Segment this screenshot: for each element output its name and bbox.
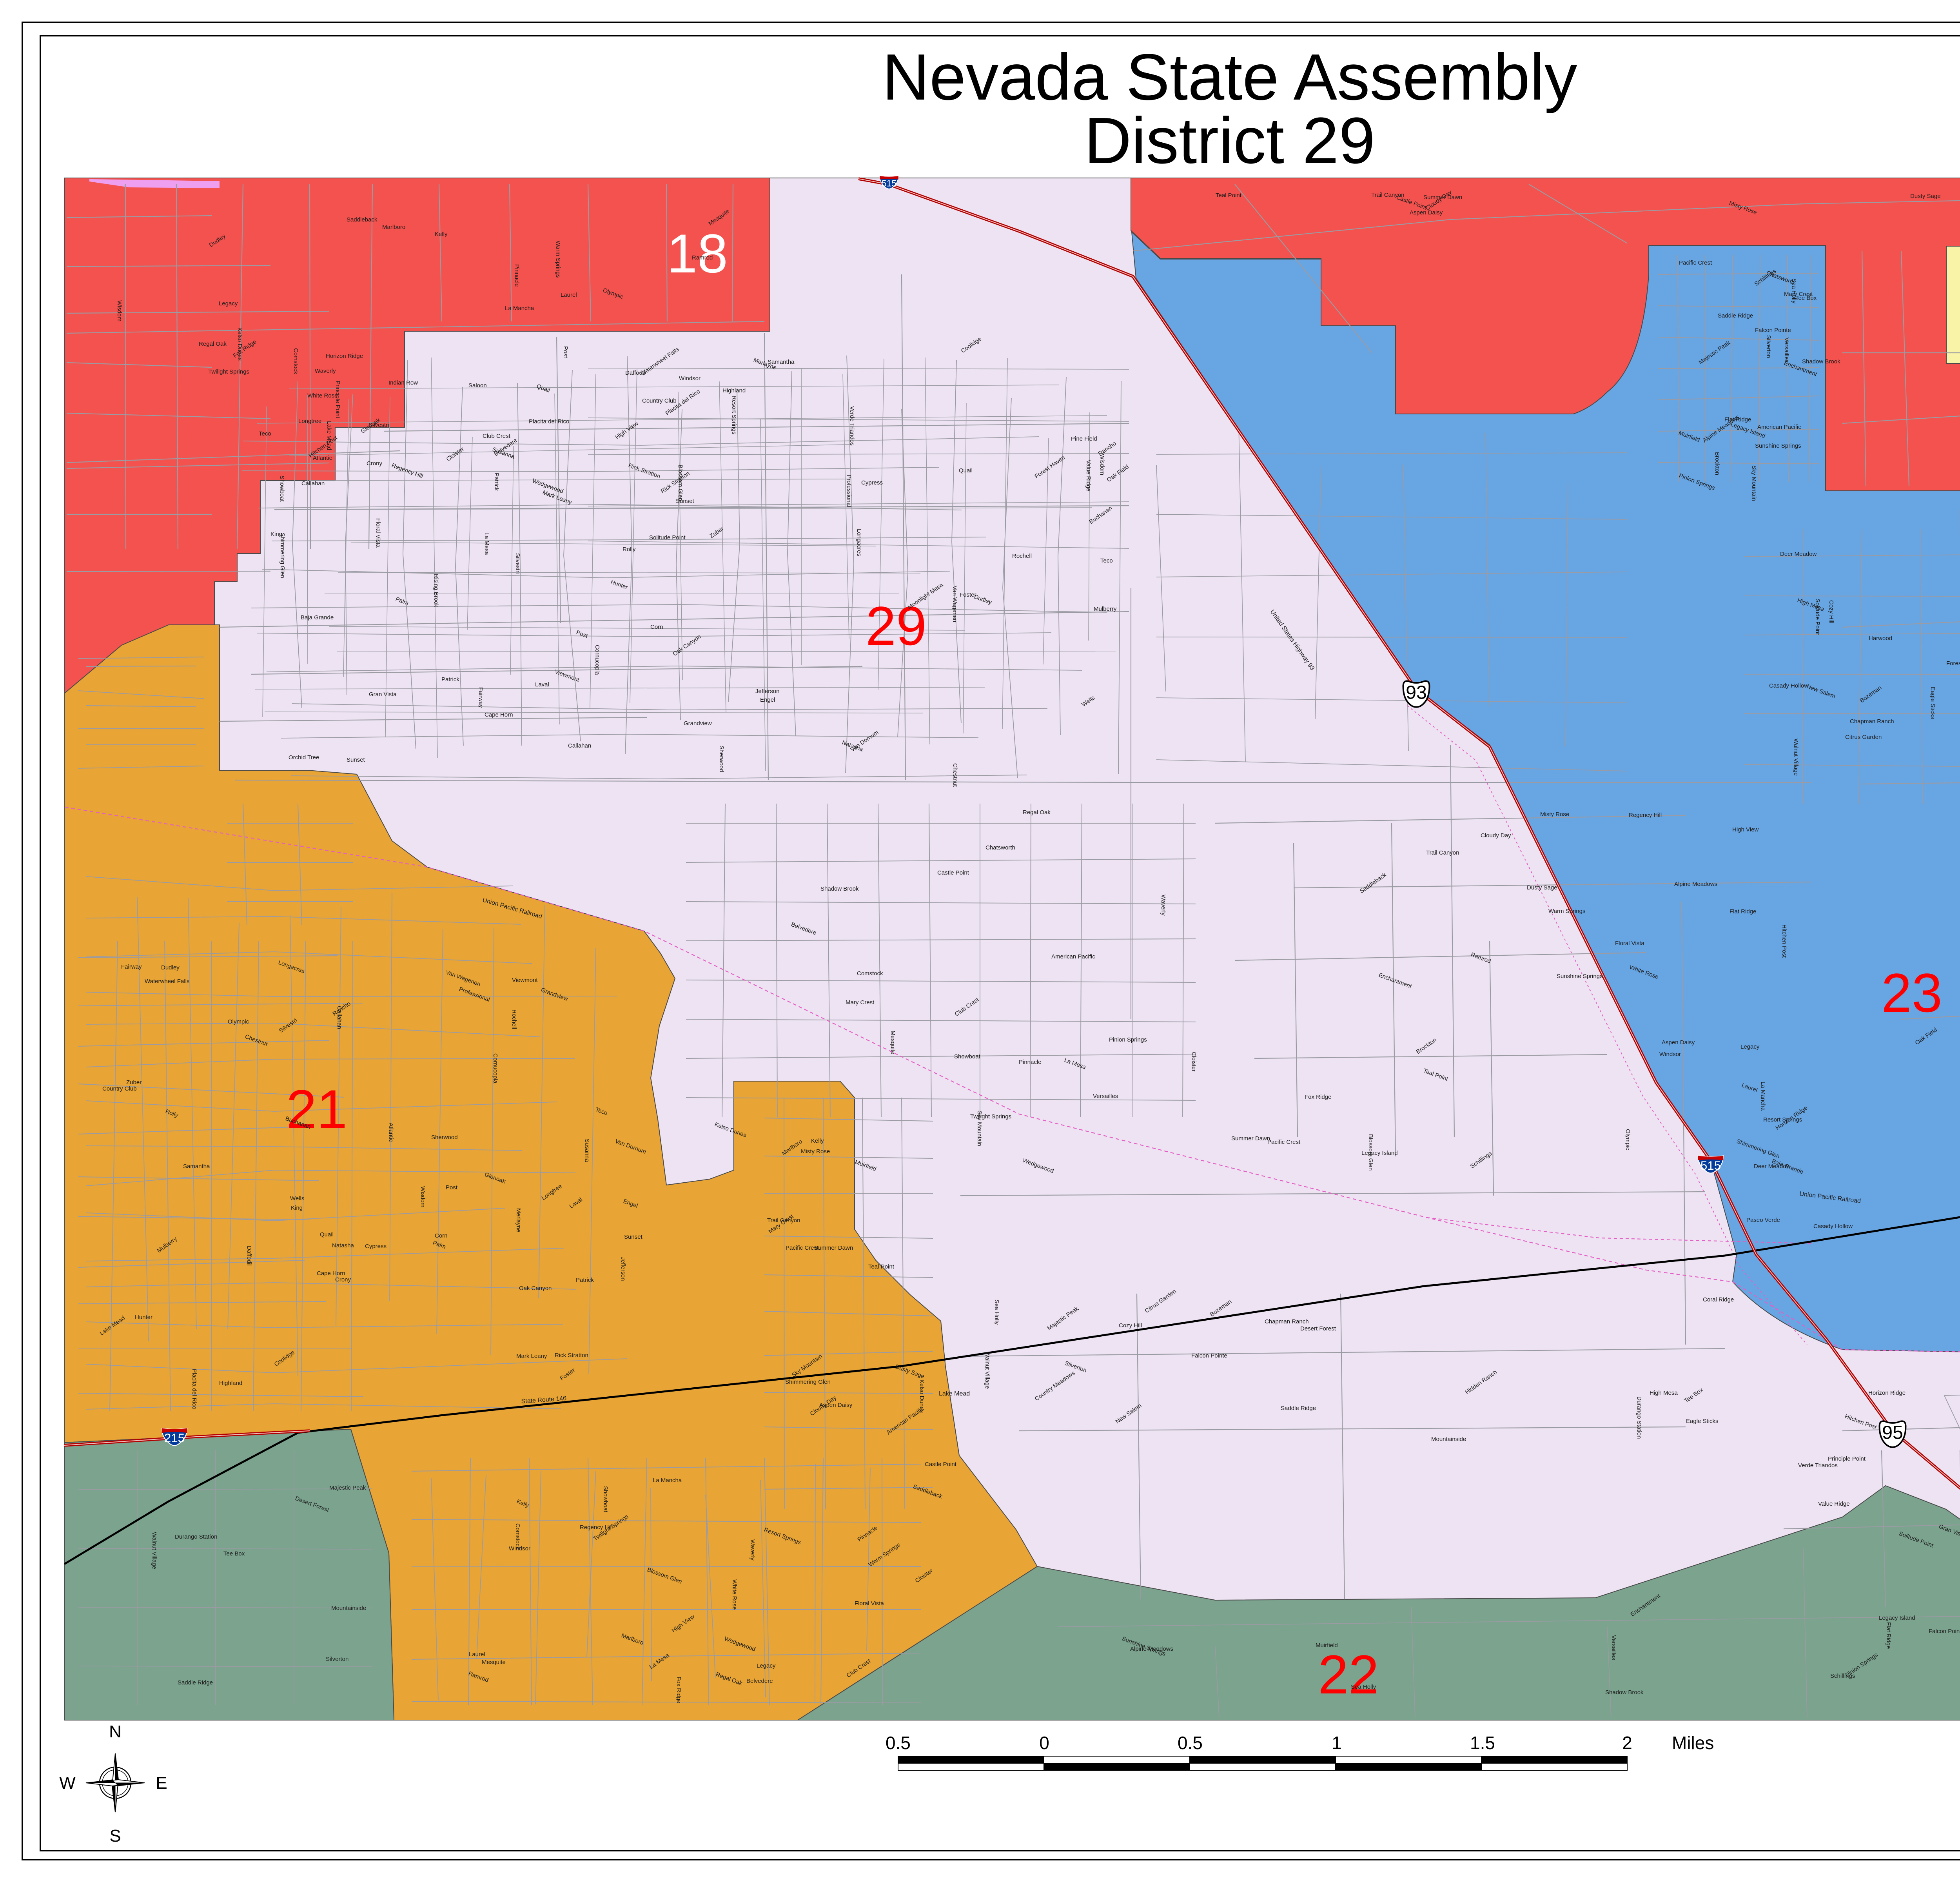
svg-text:Atlantic: Atlantic bbox=[313, 455, 332, 461]
svg-text:Mark Leany: Mark Leany bbox=[516, 1353, 547, 1359]
svg-text:Highland: Highland bbox=[219, 1380, 242, 1387]
svg-text:Waterwheel Falls: Waterwheel Falls bbox=[145, 978, 189, 985]
svg-text:Rolly: Rolly bbox=[622, 546, 636, 553]
svg-text:Shadow Brook: Shadow Brook bbox=[1802, 358, 1840, 365]
svg-text:Samantha: Samantha bbox=[183, 1163, 210, 1170]
svg-text:Merlayne: Merlayne bbox=[515, 1208, 522, 1232]
svg-text:Orchid Tree: Orchid Tree bbox=[289, 754, 319, 761]
svg-text:Wells: Wells bbox=[290, 1195, 304, 1202]
svg-text:Post: Post bbox=[562, 346, 569, 358]
svg-text:Regal Oak: Regal Oak bbox=[1023, 809, 1051, 816]
svg-text:Desert Forest: Desert Forest bbox=[1958, 607, 1960, 643]
svg-text:Teal Point: Teal Point bbox=[868, 1263, 895, 1270]
svg-text:King: King bbox=[270, 531, 282, 537]
svg-text:Quail: Quail bbox=[320, 1231, 334, 1238]
svg-text:Falcon Pointe: Falcon Pointe bbox=[1191, 1352, 1227, 1359]
svg-text:Laval: Laval bbox=[535, 681, 549, 688]
svg-text:Engel: Engel bbox=[760, 697, 775, 703]
svg-text:Silverton: Silverton bbox=[326, 1656, 348, 1662]
svg-text:Twilight Springs: Twilight Springs bbox=[208, 368, 249, 375]
svg-text:Versailles: Versailles bbox=[1783, 338, 1790, 363]
svg-text:Country Club: Country Club bbox=[102, 1085, 137, 1092]
svg-text:Harwood: Harwood bbox=[1869, 635, 1892, 642]
svg-text:Chapman Ranch: Chapman Ranch bbox=[1265, 1318, 1309, 1325]
svg-text:S: S bbox=[109, 1826, 121, 1846]
svg-text:American Pacific: American Pacific bbox=[1051, 953, 1095, 960]
svg-text:Callahan: Callahan bbox=[301, 480, 325, 487]
svg-text:Natasha: Natasha bbox=[332, 1242, 354, 1249]
svg-text:Summer Dawn: Summer Dawn bbox=[1231, 1135, 1270, 1142]
svg-text:Showboat: Showboat bbox=[602, 1486, 609, 1513]
svg-text:Cloister: Cloister bbox=[1191, 1052, 1197, 1072]
svg-text:Shadow Brook: Shadow Brook bbox=[820, 886, 859, 892]
svg-text:Pinnacle: Pinnacle bbox=[1019, 1059, 1042, 1065]
svg-text:Misty Rose: Misty Rose bbox=[1540, 811, 1569, 818]
svg-text:Versailles: Versailles bbox=[1610, 1635, 1617, 1660]
svg-text:21: 21 bbox=[286, 1078, 347, 1140]
svg-text:Resort Springs: Resort Springs bbox=[731, 396, 737, 434]
svg-text:Teal Point: Teal Point bbox=[1216, 192, 1242, 199]
svg-text:Shadow Brook: Shadow Brook bbox=[1605, 1689, 1644, 1696]
svg-text:Alpine Meadows: Alpine Meadows bbox=[1130, 1646, 1173, 1652]
svg-text:Muirfield: Muirfield bbox=[1316, 1642, 1338, 1649]
svg-text:Warm Springs: Warm Springs bbox=[555, 241, 561, 278]
svg-text:Cornucopia: Cornucopia bbox=[594, 645, 601, 675]
svg-text:1: 1 bbox=[1332, 1733, 1342, 1753]
svg-text:Showboat: Showboat bbox=[279, 475, 285, 502]
svg-text:Wisdom: Wisdom bbox=[1099, 454, 1105, 475]
svg-text:Quail: Quail bbox=[959, 467, 973, 474]
svg-text:Walnut Village: Walnut Village bbox=[1793, 739, 1799, 776]
svg-text:93: 93 bbox=[1406, 682, 1427, 703]
svg-text:23: 23 bbox=[1881, 962, 1942, 1024]
svg-text:Wisdom: Wisdom bbox=[116, 300, 123, 321]
svg-text:Susanna: Susanna bbox=[584, 1139, 590, 1162]
svg-text:Mesquite: Mesquite bbox=[889, 1031, 896, 1054]
svg-text:0: 0 bbox=[1039, 1733, 1049, 1753]
svg-text:Tee Box: Tee Box bbox=[223, 1550, 245, 1557]
svg-text:Sunshine Springs: Sunshine Springs bbox=[1557, 973, 1603, 980]
svg-text:W: W bbox=[59, 1773, 76, 1793]
svg-text:Kelso Dunes: Kelso Dunes bbox=[236, 327, 243, 361]
svg-text:Fairway: Fairway bbox=[477, 687, 484, 708]
svg-text:0.5: 0.5 bbox=[1178, 1733, 1203, 1753]
svg-text:Saddle Ridge: Saddle Ridge bbox=[1281, 1405, 1316, 1412]
svg-text:Rochell: Rochell bbox=[511, 1009, 517, 1029]
svg-text:Daffodil: Daffodil bbox=[246, 1246, 252, 1266]
svg-text:La Mancha: La Mancha bbox=[505, 305, 534, 312]
svg-text:Viewmont: Viewmont bbox=[512, 977, 538, 984]
svg-text:Cape Horn: Cape Horn bbox=[317, 1270, 345, 1277]
svg-text:Citrus Garden: Citrus Garden bbox=[1845, 734, 1882, 740]
svg-text:Corn: Corn bbox=[650, 624, 663, 630]
svg-text:Gran Vista: Gran Vista bbox=[369, 691, 397, 698]
svg-text:Dusty Sage: Dusty Sage bbox=[1910, 193, 1941, 200]
svg-text:Laurel: Laurel bbox=[561, 292, 577, 298]
svg-text:Solitude Point: Solitude Point bbox=[649, 534, 686, 541]
svg-text:Hunter: Hunter bbox=[135, 1314, 152, 1321]
svg-text:Nevada State Assembly: Nevada State Assembly bbox=[882, 41, 1577, 114]
svg-text:Legacy: Legacy bbox=[219, 300, 238, 307]
svg-text:Comstock: Comstock bbox=[292, 348, 299, 374]
svg-text:La Mesa: La Mesa bbox=[483, 532, 490, 555]
svg-text:Desert Forest: Desert Forest bbox=[1300, 1325, 1336, 1332]
svg-text:King: King bbox=[291, 1205, 303, 1211]
svg-text:Lake Mead: Lake Mead bbox=[939, 1390, 970, 1397]
svg-text:Marlboro: Marlboro bbox=[382, 224, 405, 230]
svg-text:Verde Triandos: Verde Triandos bbox=[1798, 1462, 1838, 1469]
svg-text:Cozy Hill: Cozy Hill bbox=[1119, 1322, 1142, 1329]
svg-text:Legacy: Legacy bbox=[757, 1662, 776, 1669]
svg-text:Sea Holly: Sea Holly bbox=[1351, 1684, 1376, 1690]
svg-text:515: 515 bbox=[1700, 1159, 1721, 1172]
svg-text:Pacific Crest: Pacific Crest bbox=[1679, 260, 1712, 266]
svg-text:Casady Hollow: Casady Hollow bbox=[1769, 682, 1808, 689]
svg-text:Eagle Sticks: Eagle Sticks bbox=[1686, 1418, 1719, 1425]
svg-text:Post: Post bbox=[446, 1184, 458, 1191]
svg-text:Lake Mead: Lake Mead bbox=[326, 421, 332, 450]
svg-text:Sherwood: Sherwood bbox=[431, 1134, 458, 1141]
svg-text:18: 18 bbox=[667, 223, 728, 284]
svg-text:Windsor: Windsor bbox=[509, 1545, 530, 1552]
svg-text:Deer Meadow: Deer Meadow bbox=[1780, 551, 1817, 557]
svg-text:Principle Point: Principle Point bbox=[334, 381, 341, 419]
svg-text:Crony: Crony bbox=[367, 460, 383, 467]
svg-text:Cloudy Day: Cloudy Day bbox=[1481, 832, 1511, 839]
svg-text:Fairway: Fairway bbox=[121, 964, 142, 970]
svg-text:Cozy Hill: Cozy Hill bbox=[1828, 600, 1835, 623]
svg-text:Fox Ridge: Fox Ridge bbox=[1305, 1094, 1331, 1100]
svg-text:Hitchen Post: Hitchen Post bbox=[1781, 924, 1788, 958]
svg-text:Baja Grande: Baja Grande bbox=[301, 614, 334, 621]
svg-text:Sherwood: Sherwood bbox=[718, 746, 725, 772]
svg-text:Cypress: Cypress bbox=[365, 1243, 387, 1250]
svg-text:High Mesa: High Mesa bbox=[1650, 1390, 1678, 1396]
svg-text:Rochell: Rochell bbox=[1012, 553, 1032, 559]
svg-text:Placita del Rico: Placita del Rico bbox=[529, 418, 569, 425]
svg-text:Walnut Village: Walnut Village bbox=[151, 1532, 158, 1569]
svg-text:Jefferson: Jefferson bbox=[620, 1257, 626, 1281]
svg-text:Majestic Peak: Majestic Peak bbox=[329, 1485, 366, 1491]
svg-text:Chestnut: Chestnut bbox=[952, 763, 958, 787]
svg-text:Van Wagenen: Van Wagenen bbox=[951, 586, 958, 622]
svg-text:Callahan: Callahan bbox=[336, 1006, 343, 1029]
svg-text:22: 22 bbox=[1318, 1644, 1379, 1705]
svg-text:Crony: Crony bbox=[335, 1276, 351, 1283]
svg-text:La Mancha: La Mancha bbox=[1760, 1082, 1766, 1111]
svg-text:Silvestri: Silvestri bbox=[514, 553, 521, 574]
svg-text:N: N bbox=[109, 1722, 122, 1741]
svg-text:Placita del Rico: Placita del Rico bbox=[191, 1369, 198, 1409]
svg-text:Trail Canyon: Trail Canyon bbox=[1426, 849, 1459, 856]
svg-text:Teco: Teco bbox=[1100, 557, 1113, 564]
svg-text:Flat Ridge: Flat Ridge bbox=[1730, 908, 1756, 915]
svg-text:Comstock: Comstock bbox=[857, 970, 883, 977]
svg-text:Saloon: Saloon bbox=[468, 382, 487, 389]
svg-text:Flat Ridge: Flat Ridge bbox=[1885, 1622, 1892, 1649]
svg-text:Castle Point: Castle Point bbox=[937, 869, 969, 876]
svg-text:Oak Canyon: Oak Canyon bbox=[519, 1285, 552, 1292]
svg-text:Shimmering Glen: Shimmering Glen bbox=[279, 533, 286, 578]
svg-text:Shimmering Glen: Shimmering Glen bbox=[785, 1379, 831, 1385]
svg-text:Pinnacle: Pinnacle bbox=[514, 264, 520, 287]
svg-text:Falcon Pointe: Falcon Pointe bbox=[1929, 1628, 1960, 1635]
svg-text:Alpine Meadows: Alpine Meadows bbox=[1674, 881, 1717, 887]
svg-text:Mountainside: Mountainside bbox=[331, 1605, 366, 1612]
svg-text:Value Ridge: Value Ridge bbox=[1085, 460, 1092, 492]
svg-text:Horizon Ridge: Horizon Ridge bbox=[1868, 1390, 1906, 1396]
svg-text:Teco: Teco bbox=[259, 430, 271, 437]
svg-text:1.5: 1.5 bbox=[1470, 1733, 1495, 1753]
svg-text:Casady Hollow: Casady Hollow bbox=[1813, 1223, 1853, 1230]
svg-text:White Rose: White Rose bbox=[307, 392, 338, 399]
svg-text:Pacific Crest: Pacific Crest bbox=[1267, 1139, 1301, 1145]
svg-text:Legacy: Legacy bbox=[1740, 1044, 1760, 1050]
svg-text:Aspen Daisy: Aspen Daisy bbox=[1662, 1039, 1695, 1046]
svg-text:American Pacific: American Pacific bbox=[1757, 424, 1801, 430]
svg-text:Miles: Miles bbox=[1672, 1733, 1714, 1753]
svg-text:Value Ridge: Value Ridge bbox=[1818, 1501, 1850, 1507]
svg-text:Sunset: Sunset bbox=[347, 757, 365, 763]
svg-text:Castle Point: Castle Point bbox=[925, 1461, 957, 1468]
svg-text:Pacific Crest: Pacific Crest bbox=[786, 1245, 819, 1251]
svg-text:La Mancha: La Mancha bbox=[653, 1477, 682, 1484]
svg-text:Warm Springs: Warm Springs bbox=[1548, 908, 1585, 915]
svg-text:Floral Vista: Floral Vista bbox=[375, 518, 381, 548]
svg-text:Brockton: Brockton bbox=[1714, 452, 1720, 475]
svg-text:Dusty Sage: Dusty Sage bbox=[1527, 884, 1557, 891]
svg-text:Windsor: Windsor bbox=[679, 375, 701, 382]
svg-text:Floral Vista: Floral Vista bbox=[1615, 940, 1644, 947]
svg-text:Indian Row: Indian Row bbox=[388, 379, 418, 386]
svg-text:Waverly: Waverly bbox=[315, 368, 336, 374]
svg-text:Cape Horn: Cape Horn bbox=[485, 711, 513, 718]
svg-text:215: 215 bbox=[164, 1431, 185, 1445]
svg-text:Waverly: Waverly bbox=[749, 1539, 756, 1561]
svg-text:515: 515 bbox=[882, 178, 897, 188]
svg-text:Sunset: Sunset bbox=[624, 1234, 643, 1240]
svg-text:Corn: Corn bbox=[435, 1232, 448, 1239]
svg-text:White Rose: White Rose bbox=[731, 1579, 738, 1610]
svg-text:Mulberry: Mulberry bbox=[1094, 606, 1117, 612]
svg-text:Verde Triandos: Verde Triandos bbox=[849, 406, 855, 446]
svg-text:Sky Mountain: Sky Mountain bbox=[976, 1111, 983, 1146]
svg-text:Kelly: Kelly bbox=[435, 231, 448, 238]
svg-text:Mountainside: Mountainside bbox=[1431, 1436, 1466, 1443]
svg-text:Eagle Sticks: Eagle Sticks bbox=[1929, 687, 1936, 719]
svg-text:Principle Point: Principle Point bbox=[1828, 1456, 1866, 1462]
svg-text:Pinion Springs: Pinion Springs bbox=[1109, 1036, 1147, 1043]
svg-text:Rising Brook: Rising Brook bbox=[433, 574, 439, 608]
svg-text:Legacy Island: Legacy Island bbox=[1361, 1150, 1398, 1156]
svg-text:Regency Hill: Regency Hill bbox=[1629, 812, 1662, 818]
svg-text:Patrick: Patrick bbox=[493, 473, 500, 491]
svg-text:Mesquite: Mesquite bbox=[482, 1659, 506, 1666]
svg-text:Fox Ridge: Fox Ridge bbox=[675, 1677, 682, 1703]
svg-text:Misty Rose: Misty Rose bbox=[801, 1148, 830, 1155]
svg-text:Saddle Ridge: Saddle Ridge bbox=[178, 1679, 213, 1686]
svg-text:Sunshine Springs: Sunshine Springs bbox=[1755, 443, 1801, 449]
svg-text:Mary Crest: Mary Crest bbox=[846, 999, 875, 1006]
svg-text:Falcon Pointe: Falcon Pointe bbox=[1755, 327, 1791, 334]
svg-text:Belvedere: Belvedere bbox=[746, 1678, 773, 1684]
svg-text:Olympic: Olympic bbox=[1624, 1129, 1631, 1151]
svg-text:0.5: 0.5 bbox=[886, 1733, 911, 1753]
svg-text:Sea Holly: Sea Holly bbox=[993, 1299, 1000, 1325]
svg-text:Summer Dawn: Summer Dawn bbox=[814, 1245, 853, 1251]
svg-text:Dudley: Dudley bbox=[161, 964, 180, 971]
svg-text:Trail Canyon: Trail Canyon bbox=[1371, 192, 1404, 198]
svg-text:Laurel: Laurel bbox=[469, 1651, 485, 1658]
svg-text:Chatsworth: Chatsworth bbox=[985, 844, 1015, 851]
svg-text:Highland: Highland bbox=[722, 387, 746, 394]
svg-text:2: 2 bbox=[1622, 1733, 1632, 1753]
svg-text:Paseo Verde: Paseo Verde bbox=[1746, 1217, 1780, 1223]
svg-text:Windsor: Windsor bbox=[1659, 1051, 1681, 1058]
svg-text:Saddle Ridge: Saddle Ridge bbox=[1718, 312, 1753, 319]
svg-text:Durango Station: Durango Station bbox=[1636, 1396, 1642, 1439]
svg-text:Horizon Ridge: Horizon Ridge bbox=[326, 353, 363, 359]
svg-text:Floral Vista: Floral Vista bbox=[855, 1600, 884, 1607]
svg-text:Callahan: Callahan bbox=[568, 742, 591, 749]
svg-text:Wisdom: Wisdom bbox=[419, 1186, 426, 1207]
svg-text:Cornucopia: Cornucopia bbox=[492, 1053, 499, 1083]
svg-text:Regal Oak: Regal Oak bbox=[199, 341, 227, 347]
svg-text:Grandview: Grandview bbox=[684, 720, 712, 727]
svg-text:Longtree: Longtree bbox=[298, 418, 321, 425]
svg-text:Legacy Island: Legacy Island bbox=[1879, 1615, 1915, 1621]
svg-text:Silverton: Silverton bbox=[1765, 335, 1772, 358]
svg-text:Country Club: Country Club bbox=[642, 397, 677, 404]
svg-text:High View: High View bbox=[1732, 826, 1759, 833]
svg-text:Chapman Ranch: Chapman Ranch bbox=[1850, 718, 1894, 725]
svg-text:Jefferson: Jefferson bbox=[755, 688, 779, 695]
svg-text:Durango Station: Durango Station bbox=[175, 1534, 217, 1540]
svg-text:Atlantic: Atlantic bbox=[388, 1123, 394, 1142]
svg-text:Zuber: Zuber bbox=[126, 1079, 142, 1086]
svg-text:Club Crest: Club Crest bbox=[483, 433, 511, 439]
svg-text:Waverly: Waverly bbox=[1160, 895, 1167, 916]
svg-text:Daffodil: Daffodil bbox=[625, 370, 645, 376]
svg-text:Sky Mountain: Sky Mountain bbox=[1751, 465, 1757, 501]
svg-text:Patrick: Patrick bbox=[576, 1277, 594, 1283]
svg-text:Kelly: Kelly bbox=[811, 1138, 824, 1144]
svg-text:E: E bbox=[156, 1773, 167, 1793]
svg-text:Forest Haven: Forest Haven bbox=[1946, 660, 1960, 667]
svg-text:Longacres: Longacres bbox=[856, 529, 862, 556]
svg-text:Tee Box: Tee Box bbox=[1795, 295, 1817, 301]
svg-text:Saddleback: Saddleback bbox=[347, 216, 377, 223]
svg-text:Walnut Village: Walnut Village bbox=[984, 1352, 991, 1389]
svg-text:95: 95 bbox=[1882, 1422, 1903, 1443]
svg-text:Ramrod: Ramrod bbox=[692, 254, 713, 261]
svg-text:Patrick: Patrick bbox=[441, 676, 459, 683]
svg-text:Coral Ridge: Coral Ridge bbox=[1703, 1296, 1734, 1303]
svg-text:Rick Stratton: Rick Stratton bbox=[555, 1352, 588, 1359]
svg-text:Cypress: Cypress bbox=[861, 479, 883, 486]
svg-text:Pine Field: Pine Field bbox=[1071, 436, 1097, 442]
svg-text:Aspen Daisy: Aspen Daisy bbox=[1410, 209, 1443, 216]
svg-text:Versailles: Versailles bbox=[1093, 1093, 1118, 1100]
svg-text:Showboat: Showboat bbox=[954, 1053, 981, 1060]
svg-text:Professional: Professional bbox=[846, 475, 852, 507]
svg-text:Solitude Point: Solitude Point bbox=[1814, 599, 1821, 635]
svg-text:District 29: District 29 bbox=[1084, 104, 1375, 177]
svg-text:Olympic: Olympic bbox=[228, 1018, 249, 1025]
